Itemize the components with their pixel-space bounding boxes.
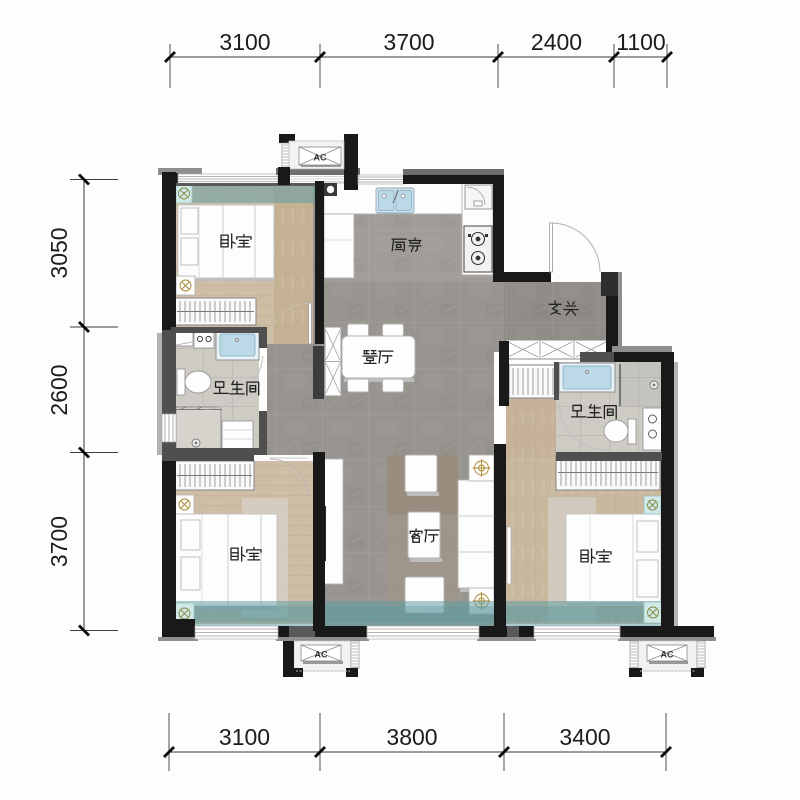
- svg-text:3400: 3400: [559, 724, 610, 750]
- svg-text:3700: 3700: [383, 29, 434, 55]
- svg-text:AC: AC: [314, 153, 327, 163]
- svg-text:2400: 2400: [531, 29, 582, 55]
- svg-text:AC: AC: [315, 650, 328, 660]
- svg-text:3100: 3100: [219, 29, 270, 55]
- svg-text:3050: 3050: [46, 227, 72, 278]
- svg-text:3100: 3100: [219, 724, 270, 750]
- svg-text:AC: AC: [661, 650, 674, 660]
- svg-text:3700: 3700: [46, 516, 72, 567]
- svg-text:1100: 1100: [616, 29, 665, 55]
- svg-text:2600: 2600: [46, 364, 72, 415]
- svg-text:3800: 3800: [386, 724, 437, 750]
